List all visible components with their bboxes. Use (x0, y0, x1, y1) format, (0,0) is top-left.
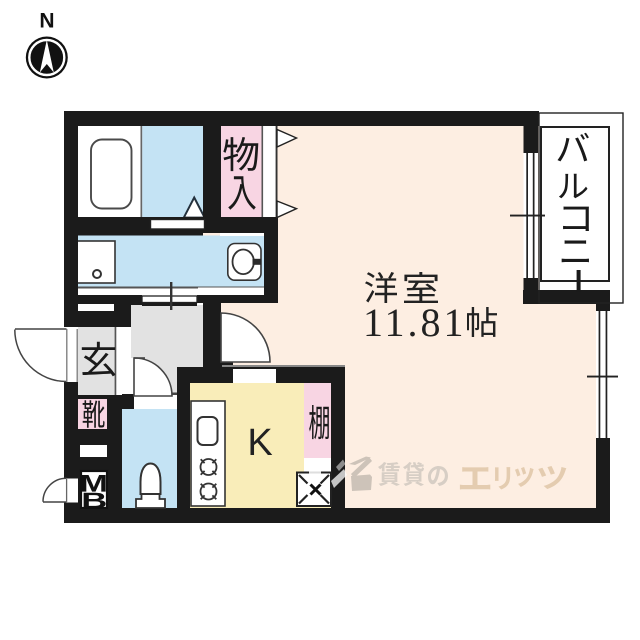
svg-text:N: N (39, 10, 54, 33)
svg-text:11.81: 11.81 (363, 300, 467, 345)
svg-text:K: K (247, 422, 272, 464)
